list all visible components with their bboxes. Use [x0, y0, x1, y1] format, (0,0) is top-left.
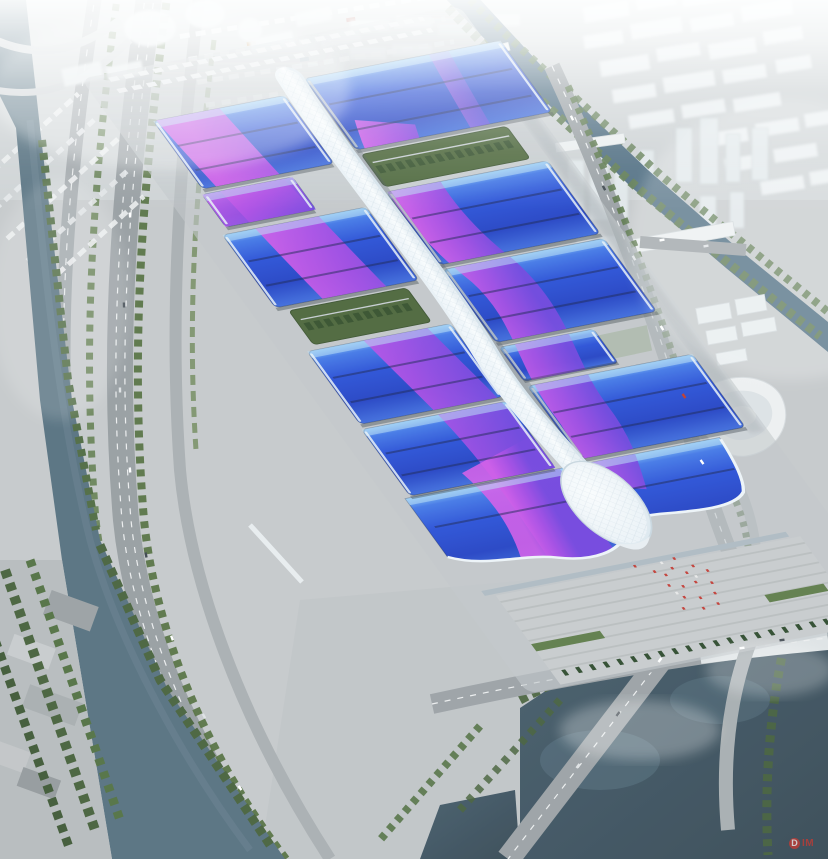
watermark-logo: D: [789, 838, 800, 849]
watermark-text: IM: [802, 838, 814, 849]
rendering-scene: [0, 0, 828, 859]
watermark: D IM: [789, 838, 814, 849]
aerial-rendering: D IM: [0, 0, 828, 859]
